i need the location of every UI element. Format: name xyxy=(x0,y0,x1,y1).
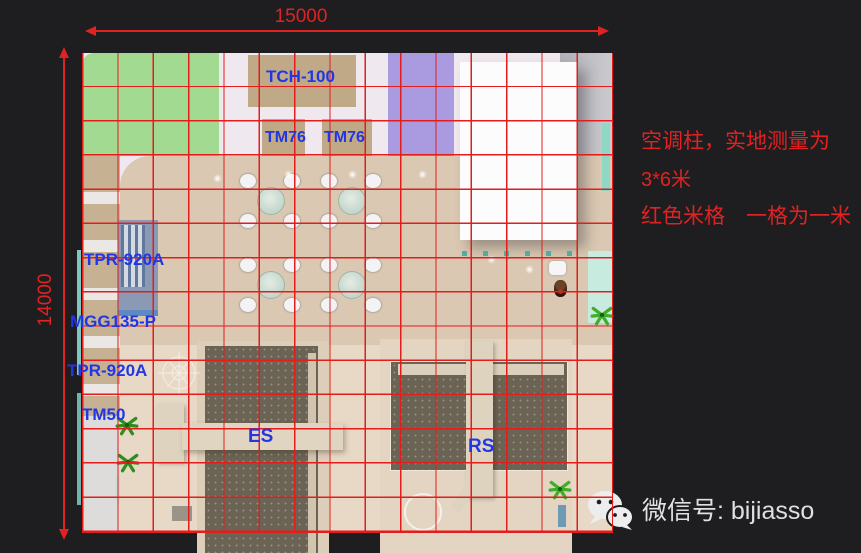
label-tm76-left: TM76 xyxy=(265,129,306,147)
counter-dots xyxy=(462,251,576,256)
rs-dark-panel-left xyxy=(390,361,470,471)
chair xyxy=(240,174,256,188)
chair xyxy=(365,214,381,228)
arrow-left-icon xyxy=(85,26,96,36)
ac-column xyxy=(460,62,578,240)
screenshot-canvas: 15000 14000 xyxy=(0,0,861,553)
mint-tab xyxy=(602,123,610,191)
light-dot xyxy=(525,265,534,274)
label-rs: RS xyxy=(468,436,494,458)
chair xyxy=(240,214,256,228)
compass-lineart-icon xyxy=(156,350,202,396)
arrow-right-icon xyxy=(598,26,609,36)
chair xyxy=(240,258,256,272)
plant-icon xyxy=(590,303,614,327)
rs-blue-strip xyxy=(558,505,566,527)
table-top xyxy=(257,187,285,215)
light-dot xyxy=(418,170,427,179)
note-ac-column: 空调柱，实地测量为 xyxy=(641,125,830,155)
chair xyxy=(284,258,300,272)
person-accent xyxy=(558,289,563,294)
table-top xyxy=(338,271,366,299)
left-dimension-line xyxy=(63,49,65,538)
watermark-text: 微信号: bijiasso xyxy=(642,491,814,527)
label-mgg135p: MGG135-P xyxy=(70,312,156,332)
light-dot xyxy=(213,174,222,183)
table-top xyxy=(338,187,366,215)
es-vertical-bar xyxy=(156,404,184,462)
rs-round-table xyxy=(404,493,442,531)
plant-icon xyxy=(548,477,572,501)
chair xyxy=(321,298,337,312)
table-top xyxy=(257,271,285,299)
label-tm76-right: TM76 xyxy=(324,129,365,147)
chair xyxy=(240,298,256,312)
light-dot xyxy=(284,170,293,179)
note-ac-size: 3*6米 xyxy=(641,163,691,192)
chair xyxy=(365,258,381,272)
arrow-down-icon xyxy=(59,529,69,540)
es-small-box xyxy=(172,506,192,521)
rs-dark-panel-right xyxy=(488,361,568,471)
chair xyxy=(284,298,300,312)
label-tpr920a-upper: TPR-920A xyxy=(84,250,164,270)
chair xyxy=(321,214,337,228)
chair xyxy=(365,298,381,312)
label-tpr920a-lower: TPR-920A xyxy=(67,361,147,381)
light-dot xyxy=(348,170,357,179)
cafe-table xyxy=(321,258,381,312)
wechat-icon xyxy=(586,489,634,531)
chair xyxy=(284,214,300,228)
cafe-table xyxy=(240,258,300,312)
label-es: ES xyxy=(248,426,273,448)
note-grid-scale: 红色米格 一格为一米 xyxy=(641,200,851,230)
label-tch100: TCH-100 xyxy=(266,67,335,87)
arrow-up-icon xyxy=(59,47,69,58)
chair xyxy=(321,258,337,272)
top-dimension-label: 15000 xyxy=(236,6,366,28)
white-chair xyxy=(549,261,566,275)
plant-icon xyxy=(116,450,140,474)
light-dot xyxy=(487,255,496,264)
chair xyxy=(321,174,337,188)
top-dimension-line xyxy=(87,30,607,32)
cafe-table xyxy=(321,174,381,228)
cafe-table xyxy=(240,174,300,228)
chair xyxy=(365,174,381,188)
left-wall-strip xyxy=(77,393,81,505)
left-dimension-label: 14000 xyxy=(35,245,57,355)
region-purple-carpet xyxy=(388,53,454,156)
region-green-carpet xyxy=(82,53,219,156)
label-tm50: TM50 xyxy=(82,405,125,425)
person-figure xyxy=(554,280,567,297)
es-side-strip xyxy=(308,353,316,553)
floor-plan: TCH-100 TM76 TM76 TPR-920A MGG135-P TPR-… xyxy=(82,53,612,532)
